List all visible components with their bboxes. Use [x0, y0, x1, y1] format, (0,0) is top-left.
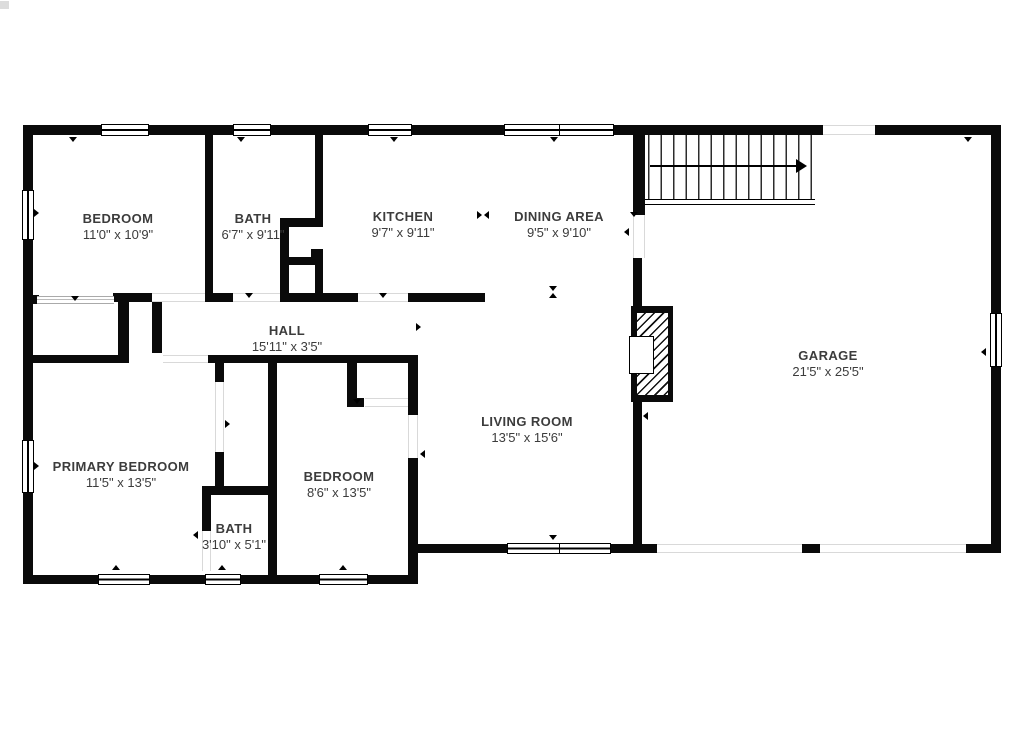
- wall: [118, 293, 129, 363]
- wall: [208, 355, 418, 363]
- wall: [633, 398, 642, 544]
- room-dimensions: 8'6" x 13'5": [249, 485, 429, 501]
- marker-icon: [390, 137, 398, 142]
- wall: [23, 493, 33, 584]
- marker-icon: [643, 412, 648, 420]
- room-dimensions: 11'5" x 13'5": [31, 475, 211, 491]
- door-opening: [163, 355, 208, 363]
- staircase: [648, 135, 812, 199]
- wall: [802, 544, 820, 553]
- marker-icon: [416, 323, 421, 331]
- wall: [23, 575, 98, 584]
- room-label-garage: GARAGE 21'5" x 25'5": [738, 348, 918, 379]
- marker-icon: [112, 565, 120, 570]
- wall: [152, 302, 162, 353]
- window: [101, 124, 149, 136]
- room-dimensions: 3'10" x 5'1": [144, 537, 324, 553]
- room-name: PRIMARY BEDROOM: [31, 459, 211, 475]
- marker-icon: [71, 296, 79, 301]
- marker-icon: [339, 565, 347, 570]
- room-label-bath-2: BATH 3'10" x 5'1": [144, 521, 324, 552]
- wall: [347, 363, 357, 400]
- room-name: LIVING ROOM: [437, 414, 617, 430]
- floorplan: BEDROOM 11'0" x 10'9" BATH 6'7" x 9'11" …: [0, 0, 1024, 738]
- garage-door-opening: [820, 544, 966, 553]
- wall: [875, 125, 1001, 135]
- wall: [23, 125, 33, 190]
- wall: [149, 125, 233, 135]
- wall: [280, 257, 312, 265]
- room-dimensions: 9'5" x 9'10": [469, 225, 649, 241]
- wall: [966, 544, 1001, 553]
- window: [98, 574, 150, 585]
- door-opening: [233, 293, 280, 302]
- wall: [280, 293, 358, 302]
- window: [507, 543, 560, 554]
- wall: [408, 544, 418, 584]
- marker-icon: [550, 137, 558, 142]
- wall: [205, 293, 233, 302]
- staircase-stringer: [645, 199, 815, 205]
- wall: [23, 355, 120, 363]
- room-label-primary-bedroom: PRIMARY BEDROOM 11'5" x 13'5": [31, 459, 211, 490]
- wall: [23, 125, 101, 135]
- room-name: GARAGE: [738, 348, 918, 364]
- window: [368, 124, 412, 136]
- window: [559, 543, 611, 554]
- wall: [408, 293, 485, 302]
- wall: [482, 544, 507, 553]
- door-opening: [408, 415, 418, 458]
- room-dimensions: 15'11" x 3'5": [197, 339, 377, 355]
- wall: [150, 575, 205, 584]
- opening-symbol-icon: [549, 293, 557, 298]
- window: [233, 124, 271, 136]
- door-opening: [365, 398, 408, 407]
- wall: [633, 125, 645, 215]
- marker-icon: [218, 565, 226, 570]
- room-name: DINING AREA: [469, 209, 649, 225]
- marker-icon: [69, 137, 77, 142]
- room-name: HALL: [197, 323, 377, 339]
- marker-icon: [420, 450, 425, 458]
- wall: [408, 544, 482, 553]
- scan-artifact: [0, 1, 9, 9]
- marker-icon: [964, 137, 972, 142]
- room-dimensions: 9'7" x 9'11": [313, 225, 493, 241]
- marker-icon: [549, 535, 557, 540]
- room-name: BEDROOM: [249, 469, 429, 485]
- garage-door-opening: [657, 544, 802, 553]
- wall: [991, 367, 1001, 553]
- wall: [611, 544, 657, 553]
- marker-icon: [353, 399, 361, 404]
- window: [205, 574, 241, 585]
- room-label-living-room: LIVING ROOM 13'5" x 15'6": [437, 414, 617, 445]
- room-label-bedroom-2: BEDROOM 8'6" x 13'5": [249, 469, 429, 500]
- wall: [215, 452, 224, 488]
- wall: [23, 240, 33, 440]
- window: [559, 124, 614, 136]
- marker-icon: [237, 137, 245, 142]
- wall: [215, 363, 224, 382]
- door-opening: [823, 125, 875, 135]
- wall: [241, 575, 319, 584]
- door-opening: [152, 293, 205, 302]
- wall: [315, 135, 323, 218]
- room-label-dining-area: DINING AREA 9'5" x 9'10": [469, 209, 649, 240]
- marker-icon: [981, 348, 986, 356]
- room-name: KITCHEN: [313, 209, 493, 225]
- wall: [408, 363, 418, 415]
- window: [990, 313, 1002, 367]
- marker-icon: [245, 293, 253, 298]
- fireplace-firebox: [629, 336, 654, 374]
- window: [504, 124, 560, 136]
- wall: [991, 125, 1001, 313]
- opening-symbol-icon: [549, 286, 557, 291]
- stairs-arrow-icon: [796, 159, 807, 173]
- room-label-kitchen: KITCHEN 9'7" x 9'11": [313, 209, 493, 240]
- stairs-direction-line: [650, 165, 798, 167]
- room-dimensions: 21'5" x 25'5": [738, 364, 918, 380]
- wall: [271, 125, 368, 135]
- marker-icon: [379, 293, 387, 298]
- marker-icon: [225, 420, 230, 428]
- room-label-hall: HALL 15'11" x 3'5": [197, 323, 377, 354]
- room-name: BATH: [144, 521, 324, 537]
- window: [319, 574, 368, 585]
- wall: [412, 125, 504, 135]
- room-dimensions: 13'5" x 15'6": [437, 430, 617, 446]
- wall: [633, 258, 642, 310]
- door-opening: [215, 382, 224, 452]
